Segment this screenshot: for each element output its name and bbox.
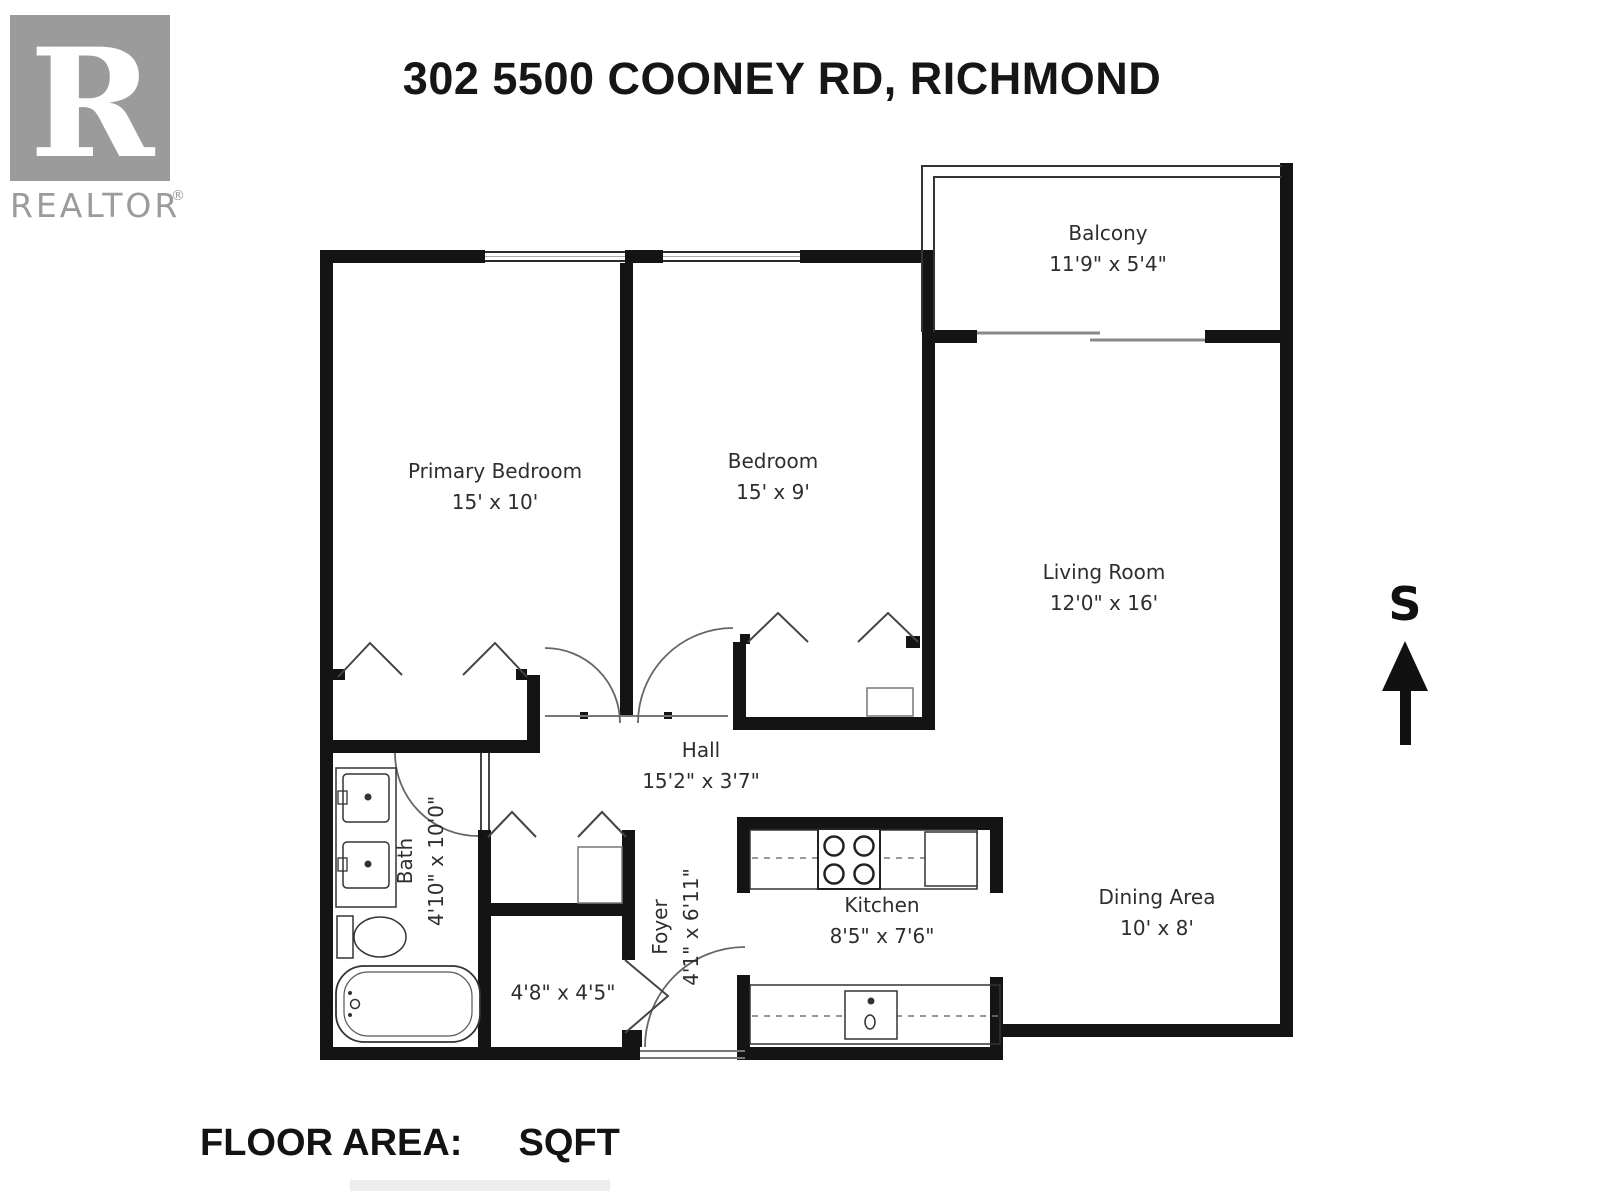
room-name: Balcony <box>1049 218 1167 249</box>
room-name: Dining Area <box>1099 882 1216 913</box>
floor-area-footer: FLOOR AREA: SQFT <box>200 1122 620 1165</box>
room-dims: 4'10" x 10'0" <box>421 796 452 926</box>
primary-bedroom-door-arc <box>545 648 620 723</box>
room-label-kitchen: Kitchen 8'5" x 7'6" <box>830 890 935 952</box>
compass-south-label: S <box>1388 577 1421 631</box>
room-dims: 10' x 8' <box>1099 913 1216 944</box>
room-name: Foyer <box>645 868 676 986</box>
room-label-living-room: Living Room 12'0" x 16' <box>1043 557 1166 619</box>
sink-icon <box>338 774 389 822</box>
room-dims: 15' x 10' <box>408 487 582 518</box>
floor-plan-page: R REALTOR ® 302 5500 COONEY RD, RICHMOND <box>0 0 1600 1200</box>
room-dims: 12'0" x 16' <box>1043 588 1166 619</box>
floor-plan-graphic <box>0 0 1600 1200</box>
room-dims: 11'9" x 5'4" <box>1049 249 1167 280</box>
room-name: Bedroom <box>728 446 818 477</box>
kitchen-sink-icon <box>845 991 897 1039</box>
room-name: Kitchen <box>830 890 935 921</box>
window-primary-bedroom <box>485 250 625 263</box>
room-dims: 4'8" x 4'5" <box>511 978 616 1009</box>
room-dims: 4'1" x 6'11" <box>676 868 707 986</box>
room-label-closet: 4'8" x 4'5" <box>511 978 616 1009</box>
room-label-dining-area: Dining Area 10' x 8' <box>1099 882 1216 944</box>
bedroom-closet-chevron-1 <box>748 613 808 642</box>
room-dims: 15' x 9' <box>728 477 818 508</box>
fridge-icon <box>925 832 977 886</box>
room-name: Primary Bedroom <box>408 456 582 487</box>
room-label-primary-bedroom: Primary Bedroom 15' x 10' <box>408 456 582 518</box>
room-label-hall: Hall 15'2" x 3'7" <box>642 735 760 797</box>
room-dims: 8'5" x 7'6" <box>830 921 935 952</box>
room-label-foyer: Foyer 4'1" x 6'11" <box>645 868 707 986</box>
room-label-bedroom: Bedroom 15' x 9' <box>728 446 818 508</box>
room-name: Bath <box>390 796 421 926</box>
scan-artifact-bar <box>350 1180 610 1191</box>
bathtub-icon <box>336 966 480 1042</box>
floor-area-label: FLOOR AREA: <box>200 1122 462 1165</box>
window-bedroom <box>663 250 800 263</box>
stove-icon <box>818 829 880 889</box>
room-label-bath: Bath 4'10" x 10'0" <box>390 796 452 926</box>
sliding-door <box>977 333 1205 340</box>
bedroom-door-arc <box>638 628 733 723</box>
room-name: Living Room <box>1043 557 1166 588</box>
primary-closet-chevron-1 <box>338 643 402 677</box>
room-name: Hall <box>642 735 760 766</box>
sink-icon <box>338 842 389 888</box>
floor-area-value: SQFT <box>518 1122 619 1165</box>
linen-closet-chevron-2 <box>578 812 626 837</box>
room-dims: 15'2" x 3'7" <box>642 766 760 797</box>
compass-arrow-icon <box>1382 641 1428 745</box>
linen-closet-chevron-1 <box>488 812 536 837</box>
room-label-balcony: Balcony 11'9" x 5'4" <box>1049 218 1167 280</box>
